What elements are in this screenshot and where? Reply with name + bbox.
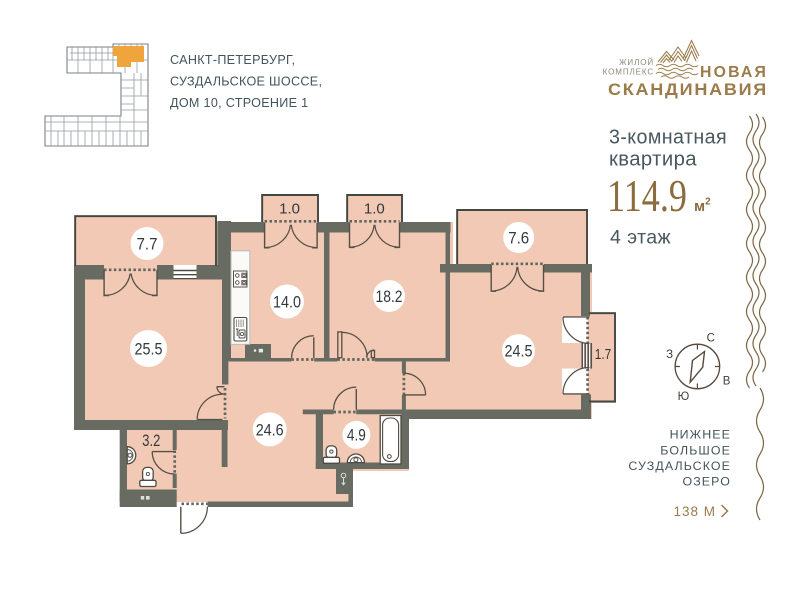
svg-text:НИЖНЕЕ: НИЖНЕЕ: [670, 428, 731, 442]
svg-text:З: З: [666, 349, 673, 361]
svg-text:квартира: квартира: [609, 149, 697, 171]
svg-text:14.0: 14.0: [273, 294, 301, 312]
svg-text:ОЗЕРО: ОЗЕРО: [682, 475, 731, 489]
svg-text:БОЛЬШОЕ: БОЛЬШОЕ: [660, 444, 731, 458]
svg-text:1.0: 1.0: [364, 201, 385, 218]
svg-text:В: В: [723, 376, 731, 388]
svg-text:С: С: [707, 333, 715, 345]
svg-text:КОМПЛЕКС: КОМПЛЕКС: [603, 68, 654, 77]
svg-text:3.2: 3.2: [142, 432, 160, 450]
svg-text:САНКТ-ПЕТЕРБУРГ,: САНКТ-ПЕТЕРБУРГ,: [170, 53, 295, 67]
svg-text:24.5: 24.5: [505, 343, 533, 361]
svg-text:7.6: 7.6: [508, 230, 529, 248]
svg-text:4.9: 4.9: [347, 426, 366, 444]
svg-text:25.5: 25.5: [135, 341, 163, 359]
svg-text:СУЗДАЛЬСКОЕ: СУЗДАЛЬСКОЕ: [628, 459, 731, 473]
svg-text:114.9: 114.9: [607, 171, 687, 221]
svg-text:7.7: 7.7: [137, 236, 158, 254]
svg-text:1.7: 1.7: [595, 346, 612, 363]
svg-text:3-комнатная: 3-комнатная: [609, 127, 727, 149]
svg-text:4 этаж: 4 этаж: [610, 227, 671, 249]
svg-text:138 М: 138 М: [673, 504, 716, 519]
svg-text:НОВАЯ: НОВАЯ: [700, 64, 768, 81]
svg-text:СУЗДАЛЬСКОЕ ШОССЕ,: СУЗДАЛЬСКОЕ ШОССЕ,: [170, 75, 322, 89]
svg-text:Ю: Ю: [678, 391, 690, 403]
svg-text:18.2: 18.2: [376, 288, 403, 306]
svg-text:СКАНДИНАВИЯ: СКАНДИНАВИЯ: [608, 81, 768, 99]
svg-text:ЖИЛОЙ: ЖИЛОЙ: [619, 58, 654, 67]
svg-text:ДОМ 10, СТРОЕНИЕ 1: ДОМ 10, СТРОЕНИЕ 1: [170, 96, 308, 110]
svg-text:24.6: 24.6: [256, 421, 284, 439]
svg-text:1.0: 1.0: [279, 201, 300, 218]
